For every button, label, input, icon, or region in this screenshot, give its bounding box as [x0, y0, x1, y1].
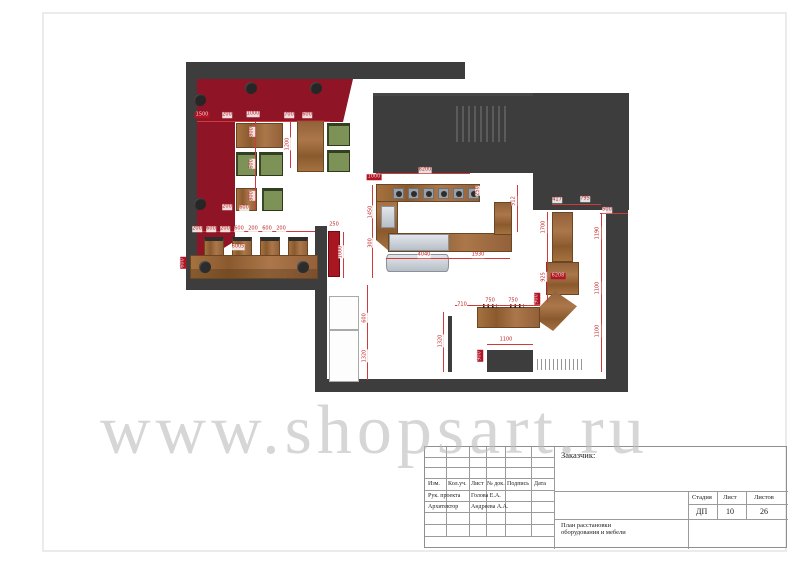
sheet-label: Лист: [723, 495, 737, 502]
dimension-label: 750: [485, 298, 495, 304]
dimension-label: 750: [508, 298, 518, 304]
dimension-label: 250: [329, 222, 339, 228]
stage-label: Стадия: [692, 495, 712, 502]
dimension-label: 8200: [419, 167, 432, 173]
watermark: www.shopsart.ru: [100, 396, 649, 466]
dimension-label: 795: [580, 196, 590, 202]
dimension-label: 700: [284, 112, 294, 118]
col-izm: Изм.: [428, 481, 440, 487]
dimension-label: 500: [602, 207, 612, 213]
dimension-label: 1320: [438, 335, 444, 348]
grid-line: [717, 491, 718, 519]
col-list: Лист: [471, 481, 484, 487]
grid-line: [425, 490, 554, 491]
dimension-label: 1200: [285, 138, 291, 151]
dimension-label: 200: [248, 226, 258, 232]
name-architect: Андреева А.А.: [471, 504, 509, 510]
stage-value: ДП: [696, 508, 707, 516]
dimension-label: 1500: [195, 112, 210, 118]
dimension-label: 925: [541, 272, 547, 282]
col-koluch: Кол.уч.: [448, 481, 467, 487]
dimension-label: 900: [534, 293, 540, 305]
dimension-label: 1930: [472, 252, 485, 258]
dimension-label: 300: [368, 238, 374, 248]
dimension-label: 200: [276, 226, 286, 232]
role-architect: Архитектор: [428, 504, 458, 510]
dimension-label: 6208: [551, 273, 566, 279]
grid-line: [688, 504, 788, 505]
dimension-label: 600: [249, 159, 255, 169]
dimension-label: 900: [477, 350, 483, 362]
dimension-label: 1450: [368, 206, 374, 219]
drawing-sheet: 1500200100070060080012006008002006006002…: [0, 0, 794, 561]
name-project-lead: Голова Е.А.: [471, 493, 501, 499]
grid-line: [554, 519, 788, 520]
dimension-label: 200: [192, 226, 202, 232]
drawing-title-line2: оборудования и мебели: [561, 530, 626, 537]
dimension-label: 600: [362, 313, 368, 323]
dimension-label: 1100: [595, 325, 601, 338]
dimension-label: 1000: [367, 174, 382, 180]
dimension-label: 1700: [541, 221, 547, 234]
sheet-value: 10: [726, 508, 734, 516]
dimension-label: 6005: [232, 244, 245, 250]
dimension-label: 600: [206, 226, 216, 232]
grid-line: [425, 536, 554, 537]
drawing-title: План расстановки оборудования и мебели: [561, 523, 626, 536]
role-project-lead: Рук. проекта: [428, 493, 460, 499]
dimension-label: 600: [262, 226, 272, 232]
dimension-label: 4040: [418, 252, 431, 258]
grid-line: [425, 501, 554, 502]
dimension-label: 200: [222, 204, 232, 210]
dimension-label: 1320: [362, 350, 368, 363]
dimension-label: 710: [457, 302, 467, 308]
grid-line: [425, 512, 554, 513]
grid-line: [688, 491, 689, 549]
dimension-label: 250: [475, 186, 481, 196]
col-podpis: Подпись: [507, 481, 529, 487]
dimension-label: 1100: [595, 282, 601, 295]
dimension-label: 1000: [247, 111, 260, 117]
dimension-label: 600: [302, 112, 312, 118]
grid-line: [554, 491, 788, 492]
sheets-label: Листов: [754, 495, 774, 502]
dimension-label: 1190: [595, 227, 601, 240]
dimension-label: 600: [180, 257, 186, 269]
grid-line: [425, 478, 554, 479]
dimension-label: 1000: [338, 246, 344, 259]
dimension-label: 800: [249, 191, 255, 201]
grid-line: [425, 524, 554, 525]
dimension-label: 200: [222, 112, 232, 118]
col-ndok: № док.: [487, 481, 505, 487]
dimension-label: 417: [552, 197, 562, 203]
dimension-label: 512: [511, 196, 517, 206]
dimension-label: 1100: [500, 337, 513, 343]
dimension-label: 800: [249, 127, 255, 137]
dimension-label: 600: [234, 226, 244, 232]
col-data: Дата: [534, 481, 546, 487]
sheets-value: 26: [760, 508, 768, 516]
grid-line: [746, 491, 747, 519]
dimension-label: 600: [239, 205, 249, 211]
dimension-label: 200: [220, 226, 230, 232]
